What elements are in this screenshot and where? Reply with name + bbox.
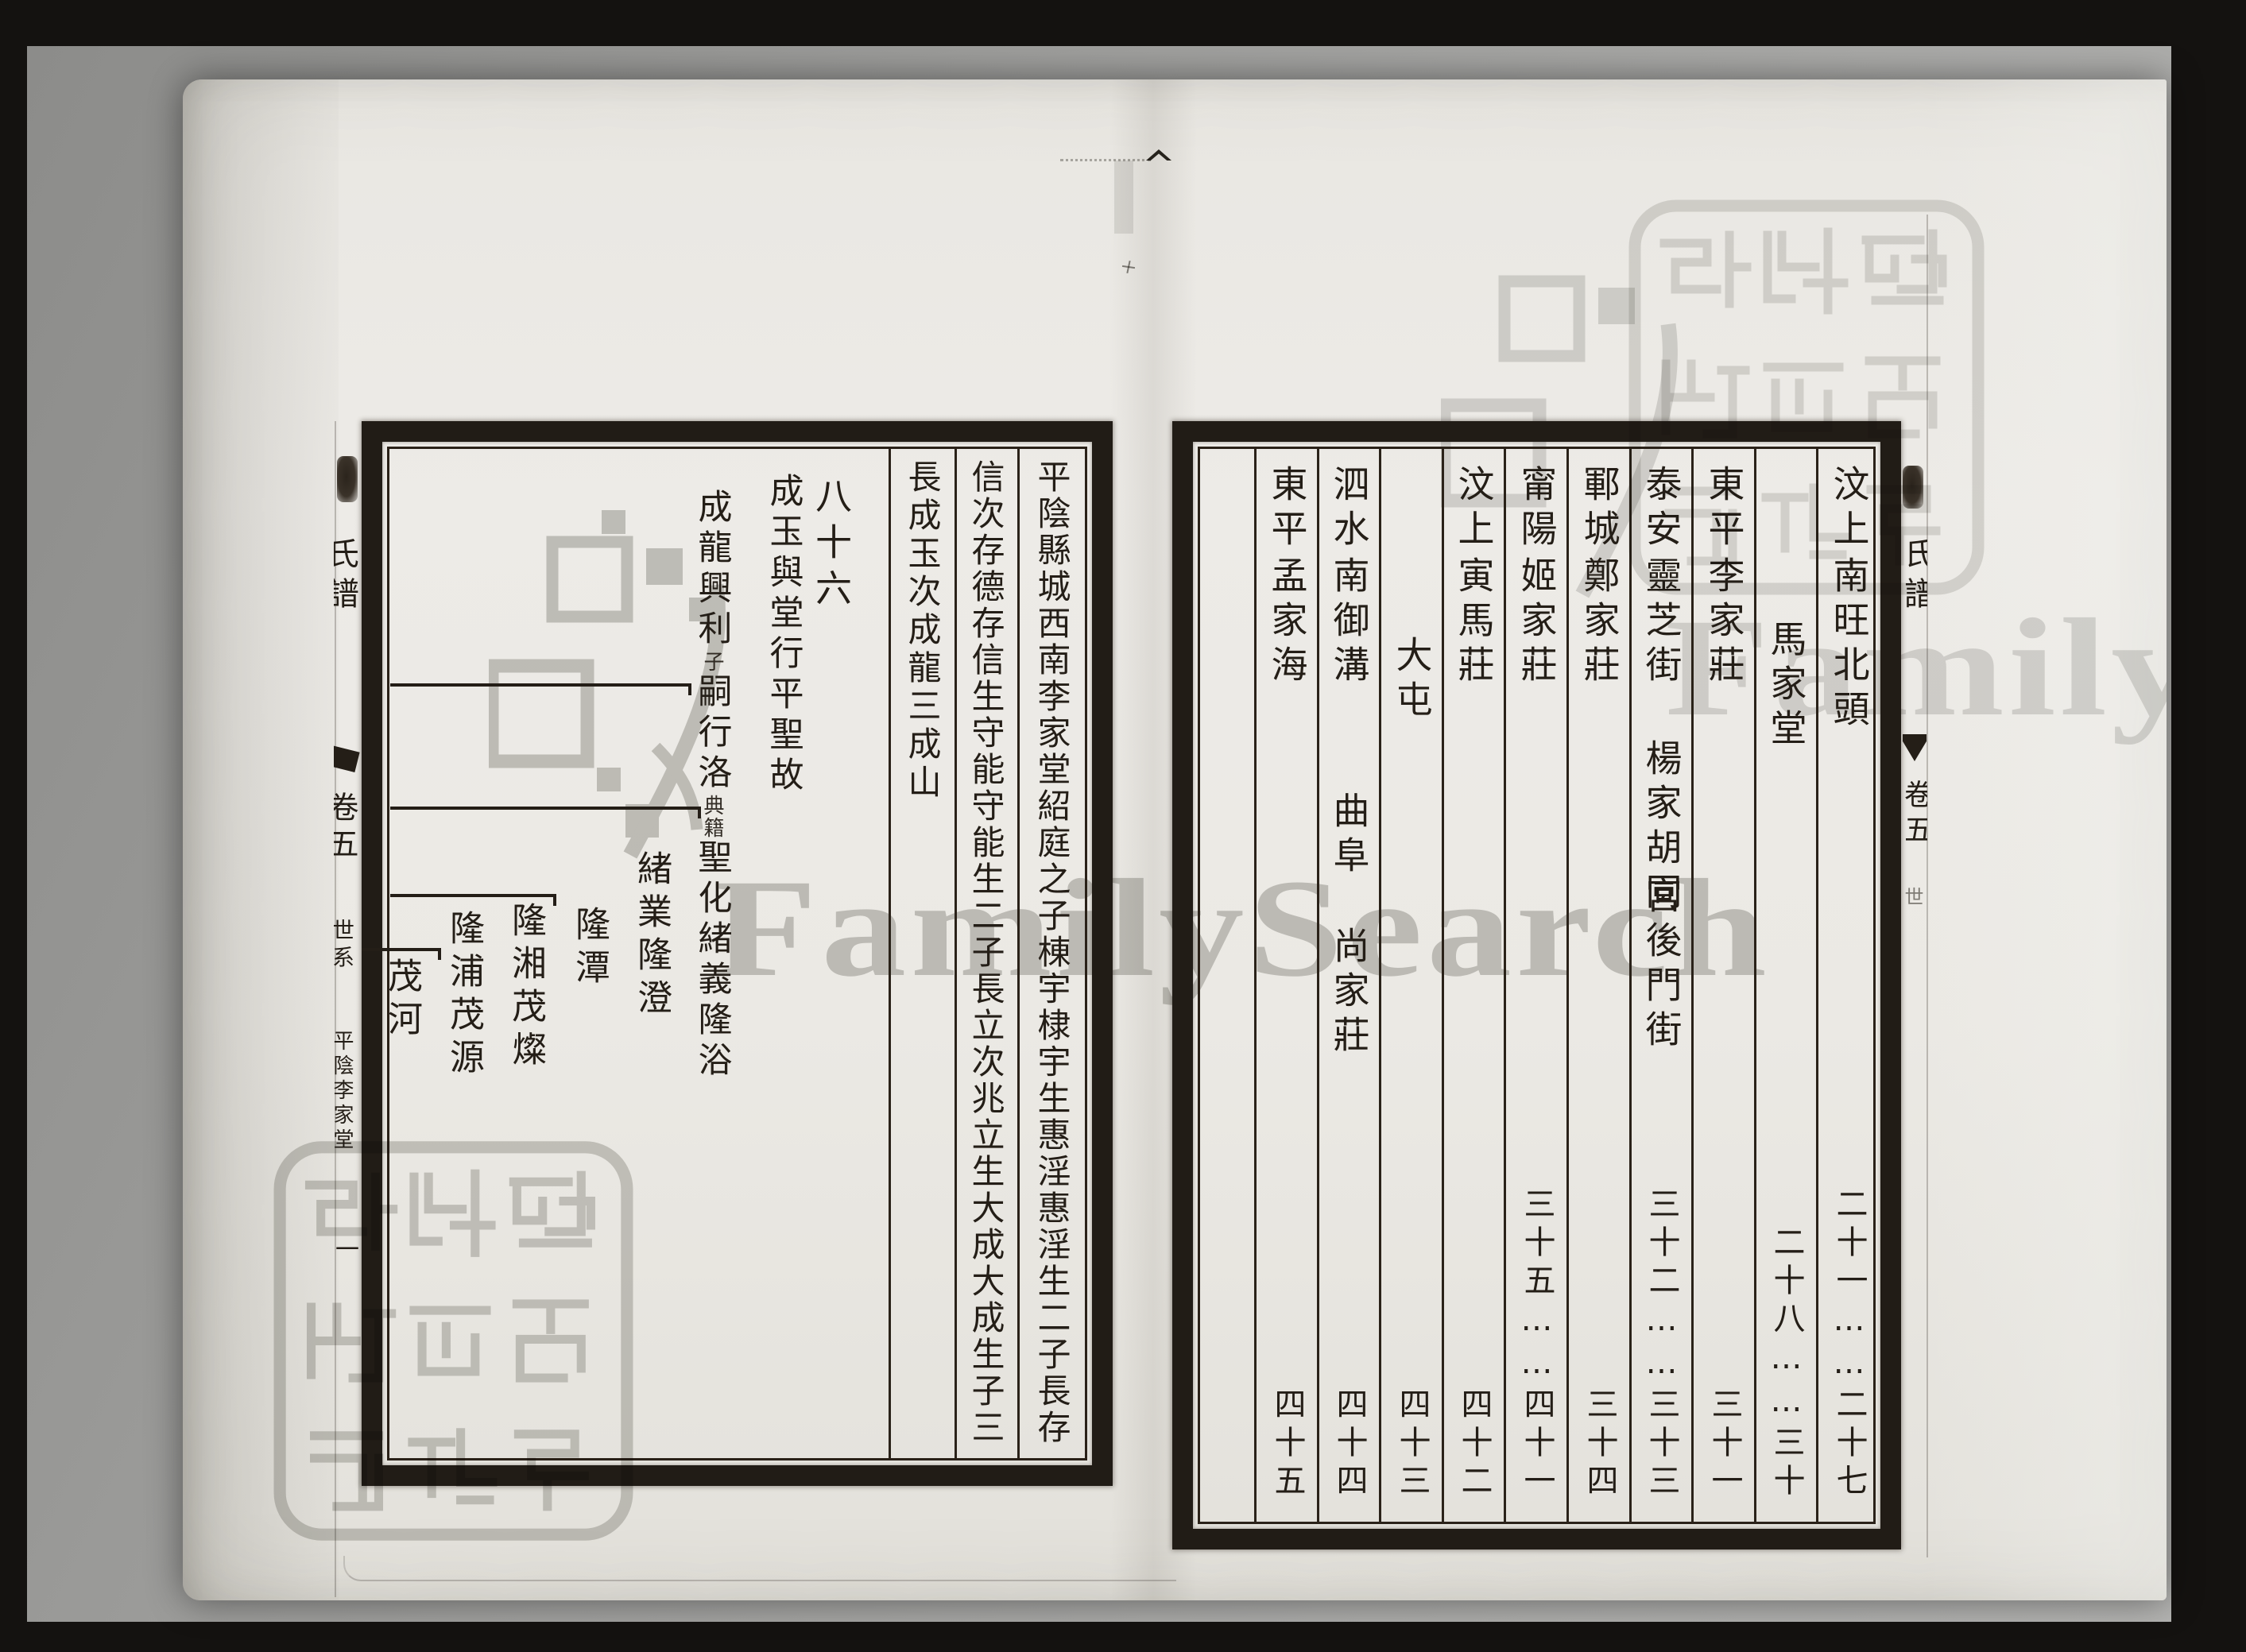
genealogy-text-column: 信次存德存信生守能守能生二子長立次兆立生大成大成生子三	[969, 459, 1002, 1446]
annotation-segment: 聖化緒義隆浴	[692, 839, 732, 1082]
descendant-name: 隆湘茂燦	[508, 902, 543, 1074]
toc-place: 寅馬莊	[1456, 556, 1493, 690]
toc-column: 鄆城 鄭家莊 三十四	[1568, 442, 1631, 1529]
descendant-name: 緒業隆澄	[633, 850, 668, 1022]
spine-section-label: 世系	[334, 919, 353, 973]
fish-tail-marker	[1903, 734, 1927, 761]
toc-page-range: 三十二……三十三	[1646, 1187, 1678, 1502]
chart-annotation-column: 成玉與堂行平聖故	[766, 473, 800, 797]
toc-page-range: 三十四	[1584, 1387, 1616, 1502]
chart-annotation-column: 成龍興利子嗣行洛典籍聖化緒義隆浴	[695, 489, 729, 1082]
toc-region: 汶上	[1456, 465, 1493, 554]
spine-book-title: 氏譜	[334, 537, 356, 617]
illegible-spine-character	[337, 456, 358, 502]
toc-place: 大屯	[1394, 636, 1431, 725]
descendant-name: 茂河	[384, 958, 419, 1043]
chart-connector-line	[390, 807, 701, 810]
registration-mark-line	[1060, 159, 1151, 161]
toc-page-range: 四十三	[1396, 1387, 1428, 1502]
column-rule	[955, 449, 957, 1458]
toc-page-range: 三十五……四十一	[1521, 1187, 1553, 1502]
toc-place: 南御溝	[1331, 556, 1368, 690]
genealogy-text-column: 長成玉次成龍三成山	[905, 459, 939, 803]
toc-region: 東平	[1269, 465, 1306, 554]
toc-page-range: 四十二	[1458, 1387, 1490, 1502]
chart-connector-line	[390, 683, 691, 687]
toc-column: 東平 孟家海 四十五	[1256, 442, 1319, 1529]
annotation-segment: 成龍興利	[692, 489, 732, 651]
descendant-name: 隆浦茂源	[446, 910, 481, 1081]
chart-connector-line	[362, 948, 441, 951]
toc-column: 大屯 四十三	[1381, 442, 1443, 1529]
toc-page-range: 二十一……二十七	[1834, 1187, 1865, 1502]
annotation-segment: 嗣行洛	[692, 673, 732, 795]
toc-place: 曲阜	[1331, 791, 1368, 880]
toc-place: 孟家海	[1269, 556, 1306, 690]
fish-tail-marker	[334, 745, 360, 772]
registration-plus-mark	[1122, 261, 1135, 273]
column-rule	[889, 449, 891, 1458]
photographed-genealogy-spread: FamilySearch FamilySearch 平陰縣城西南李家堂紹庭之子棟…	[0, 0, 2246, 1652]
annotation-small-chars: 典籍	[700, 795, 724, 839]
toc-page-range: 四十四	[1334, 1387, 1365, 1502]
toc-place: 宮後門街	[1644, 876, 1680, 1054]
chart-connector-line	[390, 894, 556, 897]
toc-column: 泗水 南御溝 曲阜 尚家莊 四十四	[1318, 442, 1381, 1529]
toc-region: 甯陽	[1519, 465, 1555, 554]
genealogy-text-column: 平陰縣城西南李家堂紹庭之子棟宇棣宇生惠淫惠淫生二子長存	[1035, 459, 1068, 1446]
left-sheet-bottom-edge	[343, 1556, 1176, 1581]
column-rule	[1017, 449, 1020, 1458]
toc-place: 鄭家莊	[1582, 556, 1618, 690]
toc-region: 泗水	[1331, 465, 1368, 554]
archive-seal-top-right	[1628, 199, 1985, 596]
spine-volume-label: 卷五	[1901, 780, 1927, 849]
toc-page-range: 二十八……三十	[1771, 1225, 1803, 1502]
toc-column: 泰安 靈芝街 楊家胡同 宮後門街 三十二……三十三	[1630, 442, 1693, 1529]
annotation-small-char: 子	[700, 651, 724, 673]
spine-section-label: 世	[1903, 887, 1922, 910]
toc-column-empty	[1193, 442, 1256, 1529]
toc-region: 鄆城	[1582, 465, 1618, 554]
toc-page-range: 三十一	[1709, 1387, 1741, 1502]
toc-column: 東平 李家莊 三十一	[1693, 442, 1756, 1529]
descendant-name: 隆潭	[571, 906, 606, 992]
toc-column: 汶上 寅馬莊 四十二	[1442, 442, 1505, 1529]
archive-seal-bottom-left	[273, 1124, 634, 1557]
toc-place: 姬家莊	[1519, 556, 1555, 690]
toc-column: 馬家堂 二十八……三十	[1755, 442, 1818, 1529]
toc-column: 甯陽 姬家莊 三十五……四十一	[1505, 442, 1568, 1529]
toc-page-range: 四十五	[1272, 1387, 1303, 1502]
paper-spread: FamilySearch FamilySearch 平陰縣城西南李家堂紹庭之子棟…	[183, 79, 2167, 1600]
registration-mark-smudge	[1114, 161, 1133, 234]
toc-place: 尚家莊	[1331, 927, 1368, 1060]
toc-column: 汶上 南旺北頭 二十一……二十七	[1818, 442, 1880, 1529]
generation-number-label: 八十六	[813, 477, 850, 615]
spine-volume-label: 卷五	[334, 791, 356, 865]
toc-place: 馬家堂	[1768, 620, 1805, 753]
